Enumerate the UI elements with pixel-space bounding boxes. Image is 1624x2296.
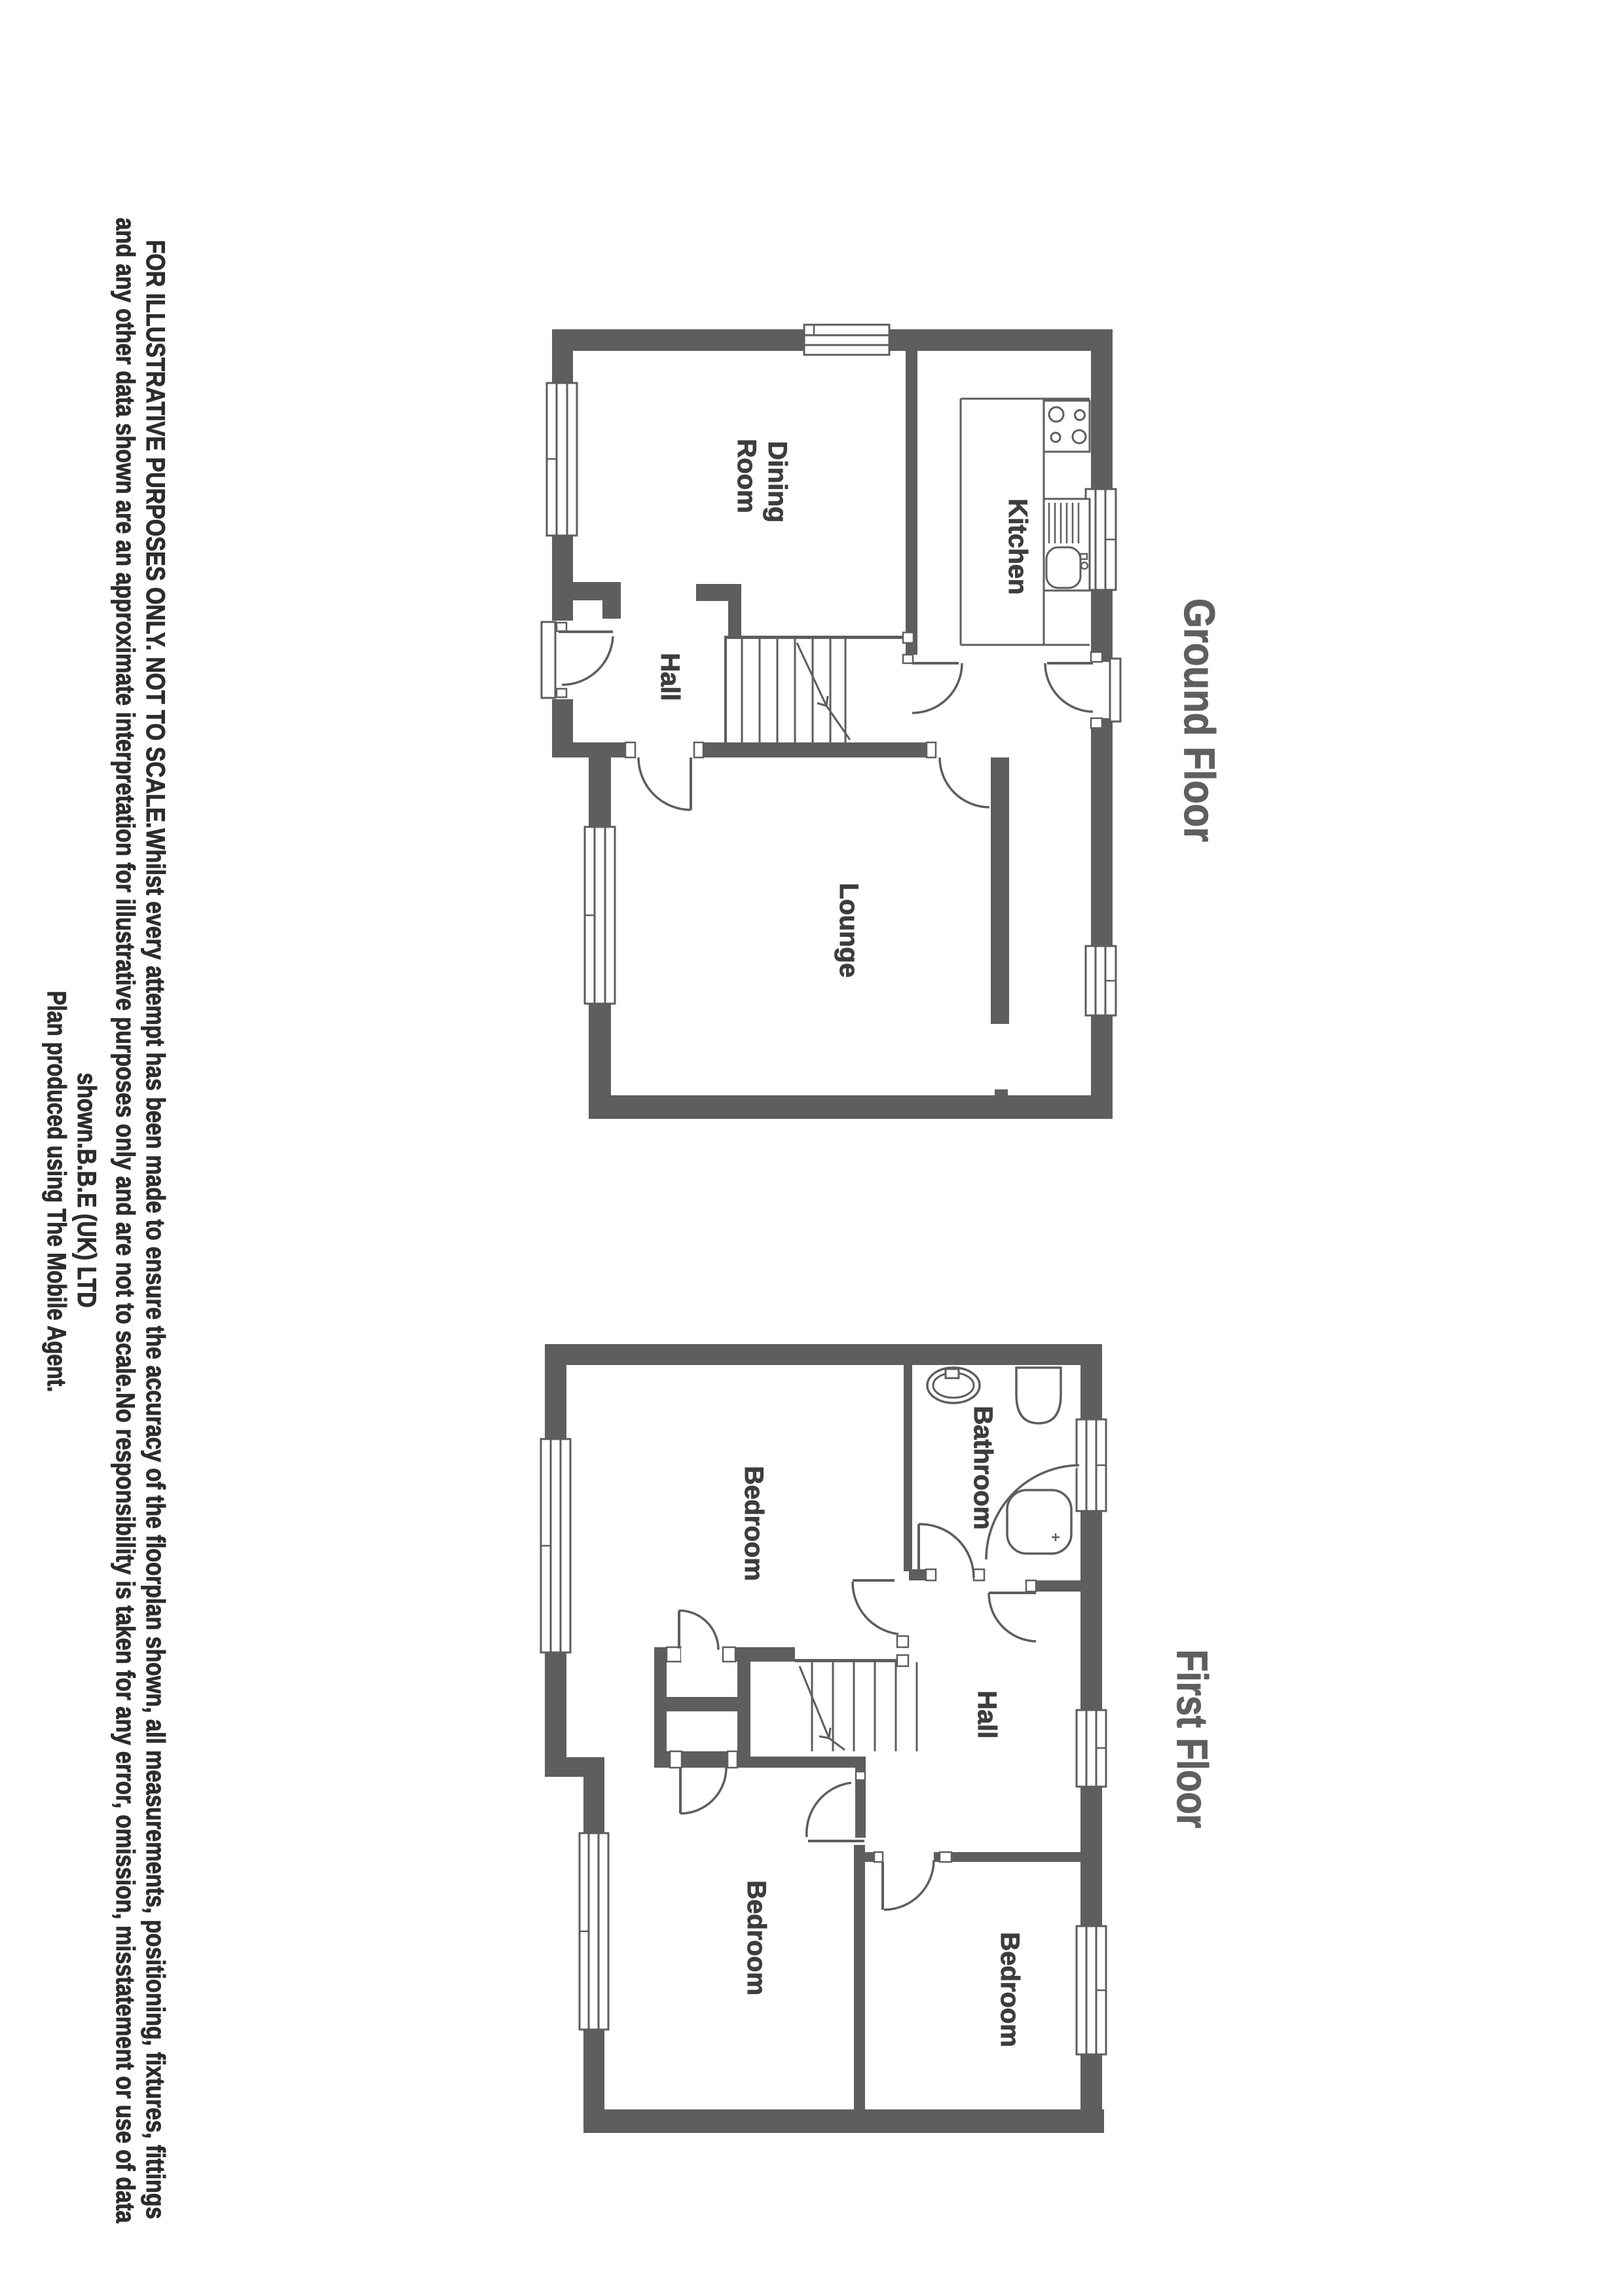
svg-text:FOR ILLUSTRATIVE PURPOSES ONLY: FOR ILLUSTRATIVE PURPOSES ONLY. NOT TO S… — [141, 240, 170, 2219]
svg-text:Hall: Hall — [655, 653, 684, 701]
svg-text:Dining: Dining — [763, 441, 792, 522]
svg-text:and any other data shown are a: and any other data shown are an approxim… — [111, 218, 139, 2224]
svg-text:Plan produced using The Mobile: Plan produced using The Mobile Agent. — [42, 991, 71, 1393]
svg-text:Bathroom: Bathroom — [969, 1406, 997, 1530]
svg-text:First Floor: First Floor — [1168, 1650, 1217, 1829]
svg-text:Lounge: Lounge — [834, 883, 863, 977]
svg-text:Bedroom: Bedroom — [742, 1880, 771, 1995]
svg-text:Ground Floor: Ground Floor — [1175, 598, 1224, 842]
svg-text:Bedroom: Bedroom — [739, 1466, 768, 1581]
svg-text:Kitchen: Kitchen — [1003, 499, 1032, 595]
svg-text:Bedroom: Bedroom — [995, 1932, 1024, 2047]
svg-text:Hall: Hall — [972, 1690, 1001, 1738]
svg-text:Room: Room — [732, 439, 761, 513]
svg-text:shown.B.B.E (UK) LTD: shown.B.B.E (UK) LTD — [72, 1073, 101, 1308]
